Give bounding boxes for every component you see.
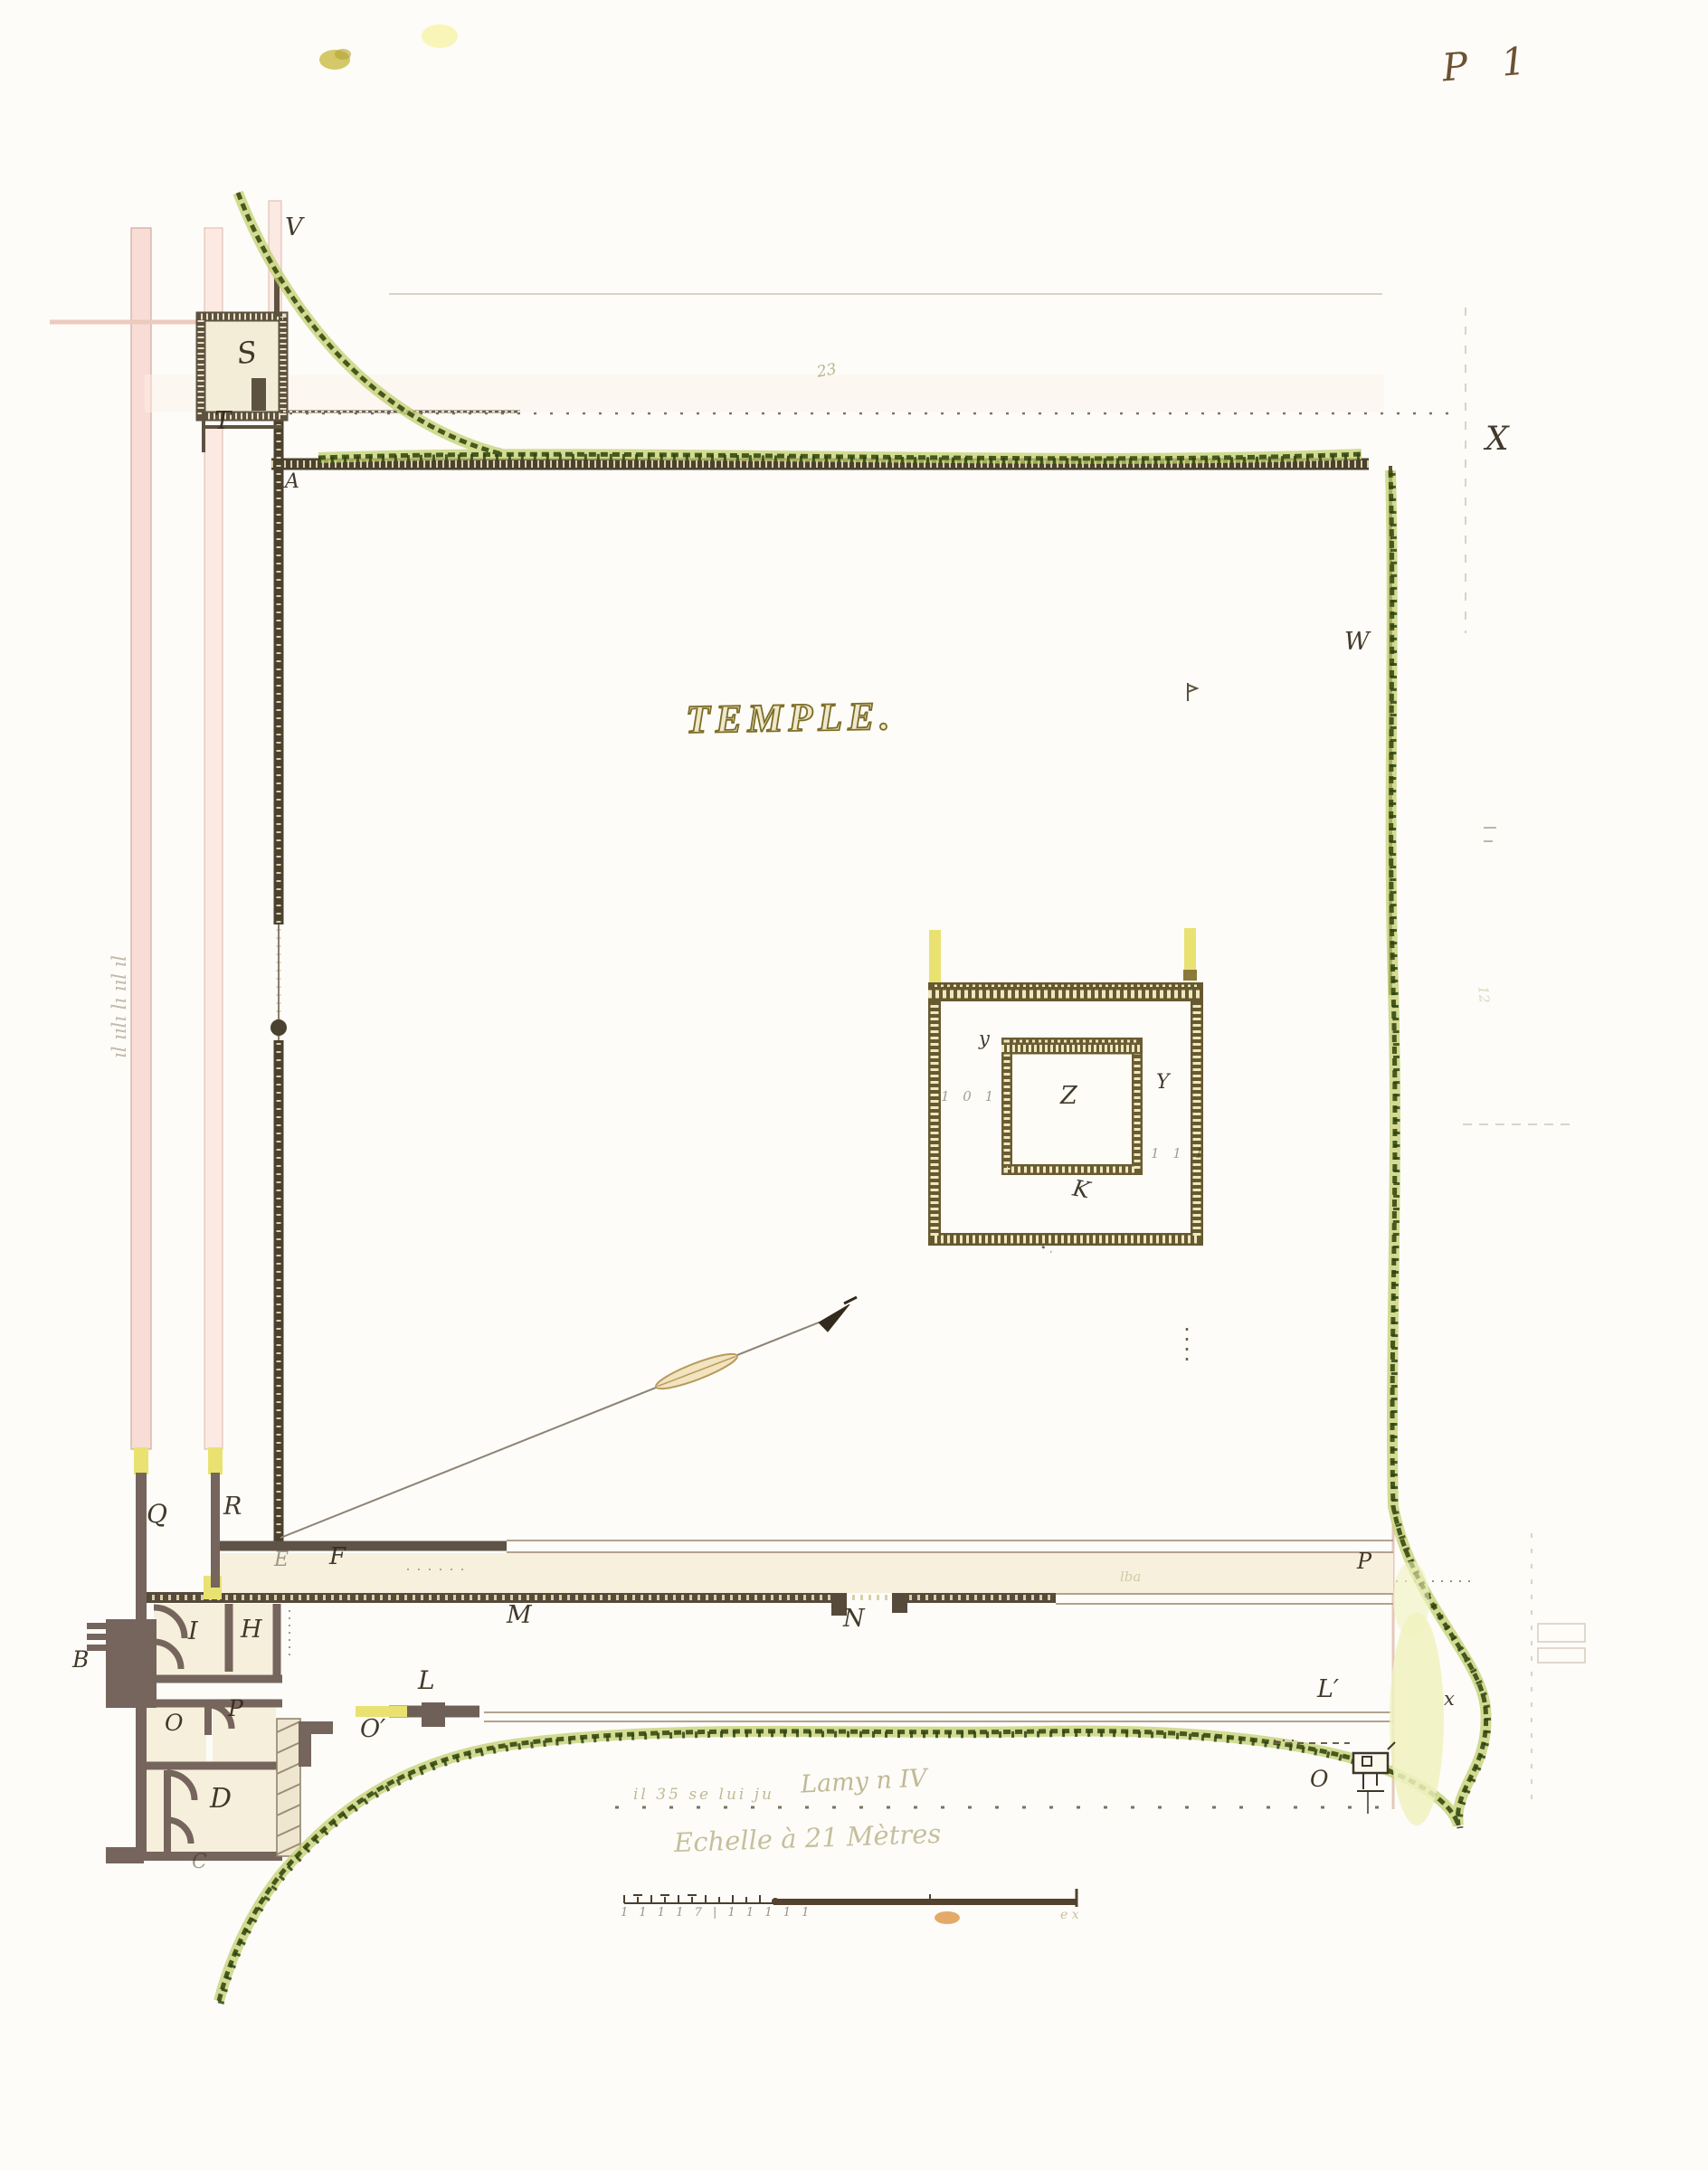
label-P-road: P: [1357, 1550, 1371, 1572]
central-monument: [928, 683, 1203, 1366]
plate-number: P 1: [1440, 38, 1538, 90]
label-H: H: [241, 1617, 262, 1642]
label-y-left: y: [979, 1029, 990, 1048]
label-ticks-left: 1 0 1: [941, 1090, 998, 1104]
label-C: C: [192, 1853, 207, 1872]
label-x-small: x: [1444, 1690, 1455, 1709]
label-L-prime: L′: [1317, 1677, 1339, 1702]
middle-caption: Lamy n IV: [800, 1766, 927, 1797]
label-Z: Z: [1060, 1084, 1077, 1108]
mark-lba: lba: [1120, 1570, 1141, 1584]
label-V: V: [285, 215, 303, 240]
plan-title: TEMPLE.: [686, 693, 896, 743]
label-D: D: [210, 1786, 232, 1813]
label-T: T: [214, 409, 231, 433]
label-M: M: [507, 1603, 532, 1627]
enclosure-walls: [136, 412, 1393, 1727]
scanned-temple-plan: TEMPLE. P 1 V S T A X W Q R E F M N P L …: [0, 0, 1708, 2171]
label-ticks-right: 1 1 1: [1151, 1147, 1208, 1161]
north-arrow: [280, 1297, 857, 1538]
label-I: I: [188, 1619, 198, 1644]
scale-numerals: 1 1 1 1 7 | 1 1 1 1 1: [621, 1907, 812, 1919]
mark-ex: e x: [1060, 1909, 1079, 1921]
label-P-room: P: [228, 1697, 243, 1720]
label-K: K: [1071, 1177, 1092, 1202]
label-Q: Q: [147, 1502, 167, 1527]
label-O-prime: O′: [360, 1717, 385, 1741]
road-note-text: il 35 se lui ju: [633, 1787, 774, 1803]
label-R: R: [223, 1494, 242, 1519]
label-X: X: [1485, 423, 1509, 456]
mark-23: 23: [816, 362, 838, 380]
corridor: [134, 1447, 1393, 1717]
label-E: E: [274, 1550, 289, 1570]
label-F: F: [329, 1545, 346, 1569]
paper-stains: [319, 24, 458, 70]
mark-12: 12: [1476, 985, 1491, 1003]
label-N: N: [843, 1607, 865, 1631]
left-margin-note: ıl ıılı lı ııl ıl: [110, 955, 129, 1058]
label-O-room: O: [165, 1711, 184, 1734]
label-O-kiosk: O: [1310, 1768, 1329, 1790]
label-S: S: [235, 337, 259, 369]
label-Y-right: Y: [1156, 1073, 1170, 1093]
label-L: L: [418, 1668, 435, 1693]
label-W: W: [1344, 630, 1370, 654]
label-A: A: [285, 472, 299, 492]
label-B: B: [72, 1648, 89, 1671]
